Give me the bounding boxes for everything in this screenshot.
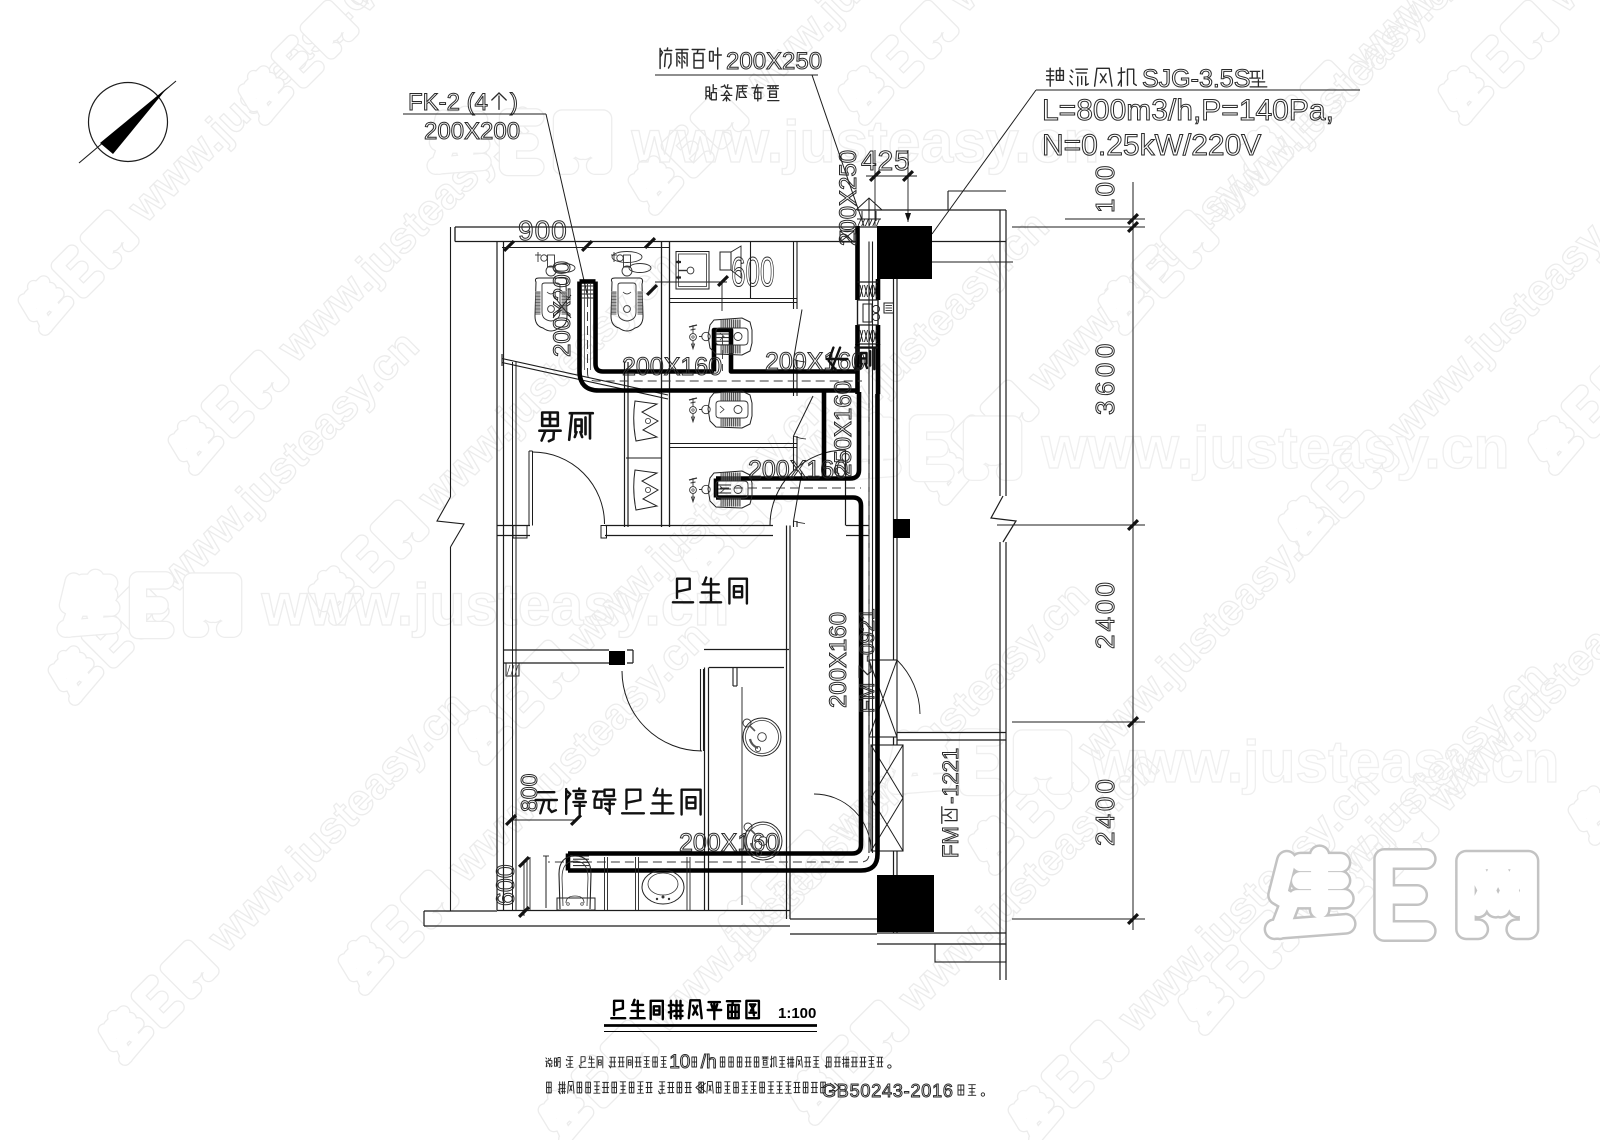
svg-text:FK-2 (4: FK-2 (4 [408, 89, 488, 116]
svg-text:SJG-3.5S: SJG-3.5S [1142, 65, 1250, 93]
svg-text:www.justeasy.cn: www.justeasy.cn [1091, 730, 1560, 795]
svg-text:600: 600 [731, 249, 774, 296]
svg-text:250X160: 250X160 [830, 381, 857, 477]
svg-text:200X250: 200X250 [835, 150, 862, 246]
svg-text:www.justeasy.cn: www.justeasy.cn [1041, 416, 1510, 481]
svg-text:200X200: 200X200 [424, 118, 520, 145]
svg-text:): ) [510, 89, 518, 116]
svg-text:-0921: -0921 [856, 608, 879, 662]
svg-text:FM: FM [938, 826, 963, 858]
svg-text:2400: 2400 [1090, 579, 1120, 649]
svg-text:/h: /h [701, 1052, 717, 1073]
svg-text:N=0.25kW/220V: N=0.25kW/220V [1042, 129, 1261, 162]
svg-text:-1221: -1221 [938, 748, 963, 804]
svg-text:www.justeasy.cn: www.justeasy.cn [261, 573, 730, 638]
svg-text:200X160: 200X160 [679, 829, 779, 857]
svg-text:900: 900 [518, 215, 568, 246]
svg-text:200X160: 200X160 [622, 353, 722, 381]
svg-text:FM: FM [856, 683, 879, 713]
svg-text:425: 425 [861, 145, 911, 176]
svg-text:10: 10 [669, 1052, 690, 1073]
svg-text:200X160: 200X160 [765, 348, 865, 376]
svg-text:L=800m3/h,P=140Pa,: L=800m3/h,P=140Pa, [1042, 94, 1334, 127]
svg-text:2400: 2400 [1090, 776, 1120, 846]
svg-text:1:100: 1:100 [778, 1005, 816, 1022]
svg-text:200X250: 200X250 [726, 48, 822, 75]
svg-text:100: 100 [1090, 164, 1120, 213]
svg-text:GB50243-2016: GB50243-2016 [822, 1081, 954, 1101]
svg-text:600: 600 [492, 864, 520, 906]
svg-text:200X160: 200X160 [825, 612, 852, 708]
svg-text:3600: 3600 [1090, 339, 1120, 415]
